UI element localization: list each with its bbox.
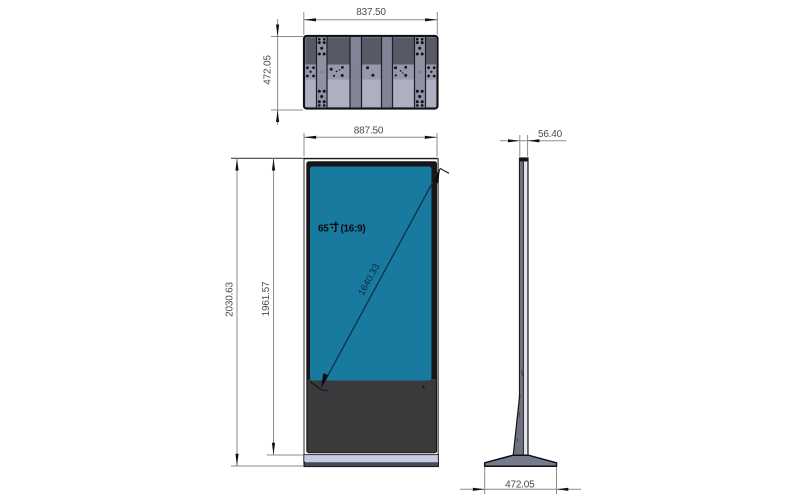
svg-text:2030.63: 2030.63 <box>225 281 236 316</box>
svg-text:887.50: 887.50 <box>354 126 384 137</box>
svg-text:472.05: 472.05 <box>263 55 274 85</box>
svg-text:1961.57: 1961.57 <box>261 281 272 316</box>
svg-text:472.05: 472.05 <box>505 480 535 491</box>
svg-text:(16:9): (16:9) <box>341 223 366 234</box>
svg-text:837.50: 837.50 <box>356 7 386 18</box>
svg-text:65: 65 <box>318 223 329 234</box>
svg-text:56.40: 56.40 <box>538 129 563 140</box>
